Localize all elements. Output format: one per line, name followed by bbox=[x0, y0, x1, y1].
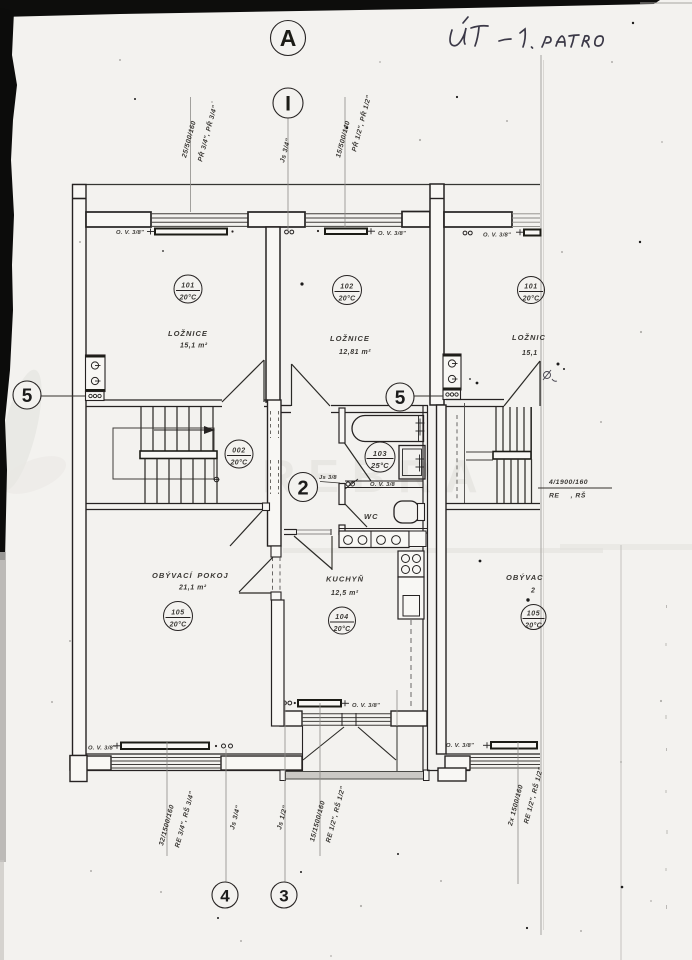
svg-text:21,1 m²: 21,1 m² bbox=[178, 585, 207, 592]
svg-text:4/1900/160: 4/1900/160 bbox=[548, 479, 588, 486]
svg-text:20°C: 20°C bbox=[333, 625, 351, 633]
svg-text:20°C: 20°C bbox=[169, 621, 187, 629]
svg-text:O. V. 3/8": O. V. 3/8" bbox=[378, 231, 406, 237]
svg-text:20°C: 20°C bbox=[338, 295, 356, 303]
svg-text:O. V. 3/8": O. V. 3/8" bbox=[446, 743, 474, 749]
svg-text:2: 2 bbox=[530, 588, 535, 595]
svg-text:25°C: 25°C bbox=[370, 461, 389, 470]
svg-text:OBÝVAC: OBÝVAC bbox=[506, 573, 544, 582]
svg-text:105: 105 bbox=[171, 610, 184, 617]
svg-text:O. V. 3/8": O. V. 3/8" bbox=[116, 230, 144, 236]
svg-text:5: 5 bbox=[395, 388, 406, 409]
svg-text:20°C: 20°C bbox=[230, 459, 248, 467]
svg-text:12,81 m²: 12,81 m² bbox=[339, 349, 371, 356]
svg-text:O. V. 3/8: O. V. 3/8 bbox=[370, 482, 396, 488]
svg-text:Js 3/8: Js 3/8 bbox=[319, 475, 337, 481]
svg-text:LOŽNICE: LOŽNICE bbox=[330, 334, 370, 343]
svg-text:O. V. 3/8": O. V. 3/8" bbox=[88, 746, 116, 752]
svg-text:KUCHYŇ: KUCHYŇ bbox=[326, 575, 364, 584]
svg-text:2: 2 bbox=[297, 478, 308, 500]
svg-text:20°C: 20°C bbox=[522, 295, 540, 303]
svg-text:20°C: 20°C bbox=[524, 622, 542, 630]
svg-text:104: 104 bbox=[335, 614, 348, 621]
svg-text:101: 101 bbox=[181, 283, 194, 290]
svg-text:15,1: 15,1 bbox=[522, 350, 538, 357]
svg-text:I: I bbox=[285, 93, 291, 116]
svg-text:103: 103 bbox=[373, 449, 388, 458]
svg-text:O. V. 3/8": O. V. 3/8" bbox=[352, 703, 380, 709]
svg-text:RE , RŠ: RE , RŠ bbox=[549, 491, 586, 500]
svg-text:002: 002 bbox=[232, 448, 245, 455]
svg-text:15,1 m²: 15,1 m² bbox=[180, 343, 208, 350]
svg-text:A: A bbox=[280, 25, 297, 51]
svg-text:4: 4 bbox=[220, 887, 230, 906]
svg-text:105: 105 bbox=[527, 611, 540, 618]
svg-text:OBÝVACÍ POKOJ: OBÝVACÍ POKOJ bbox=[152, 571, 229, 580]
svg-text:102: 102 bbox=[340, 284, 353, 291]
svg-text:LOŽNIC: LOŽNIC bbox=[512, 333, 546, 342]
svg-text:101: 101 bbox=[524, 284, 537, 291]
svg-text:20°C: 20°C bbox=[179, 294, 197, 302]
svg-text:LOŽNICE: LOŽNICE bbox=[168, 329, 208, 338]
svg-text:3: 3 bbox=[279, 887, 288, 906]
svg-text:O. V. 3/8": O. V. 3/8" bbox=[483, 233, 511, 239]
svg-text:5: 5 bbox=[22, 386, 33, 407]
svg-text:12,5 m²: 12,5 m² bbox=[331, 590, 359, 597]
svg-text:WC: WC bbox=[364, 512, 379, 521]
